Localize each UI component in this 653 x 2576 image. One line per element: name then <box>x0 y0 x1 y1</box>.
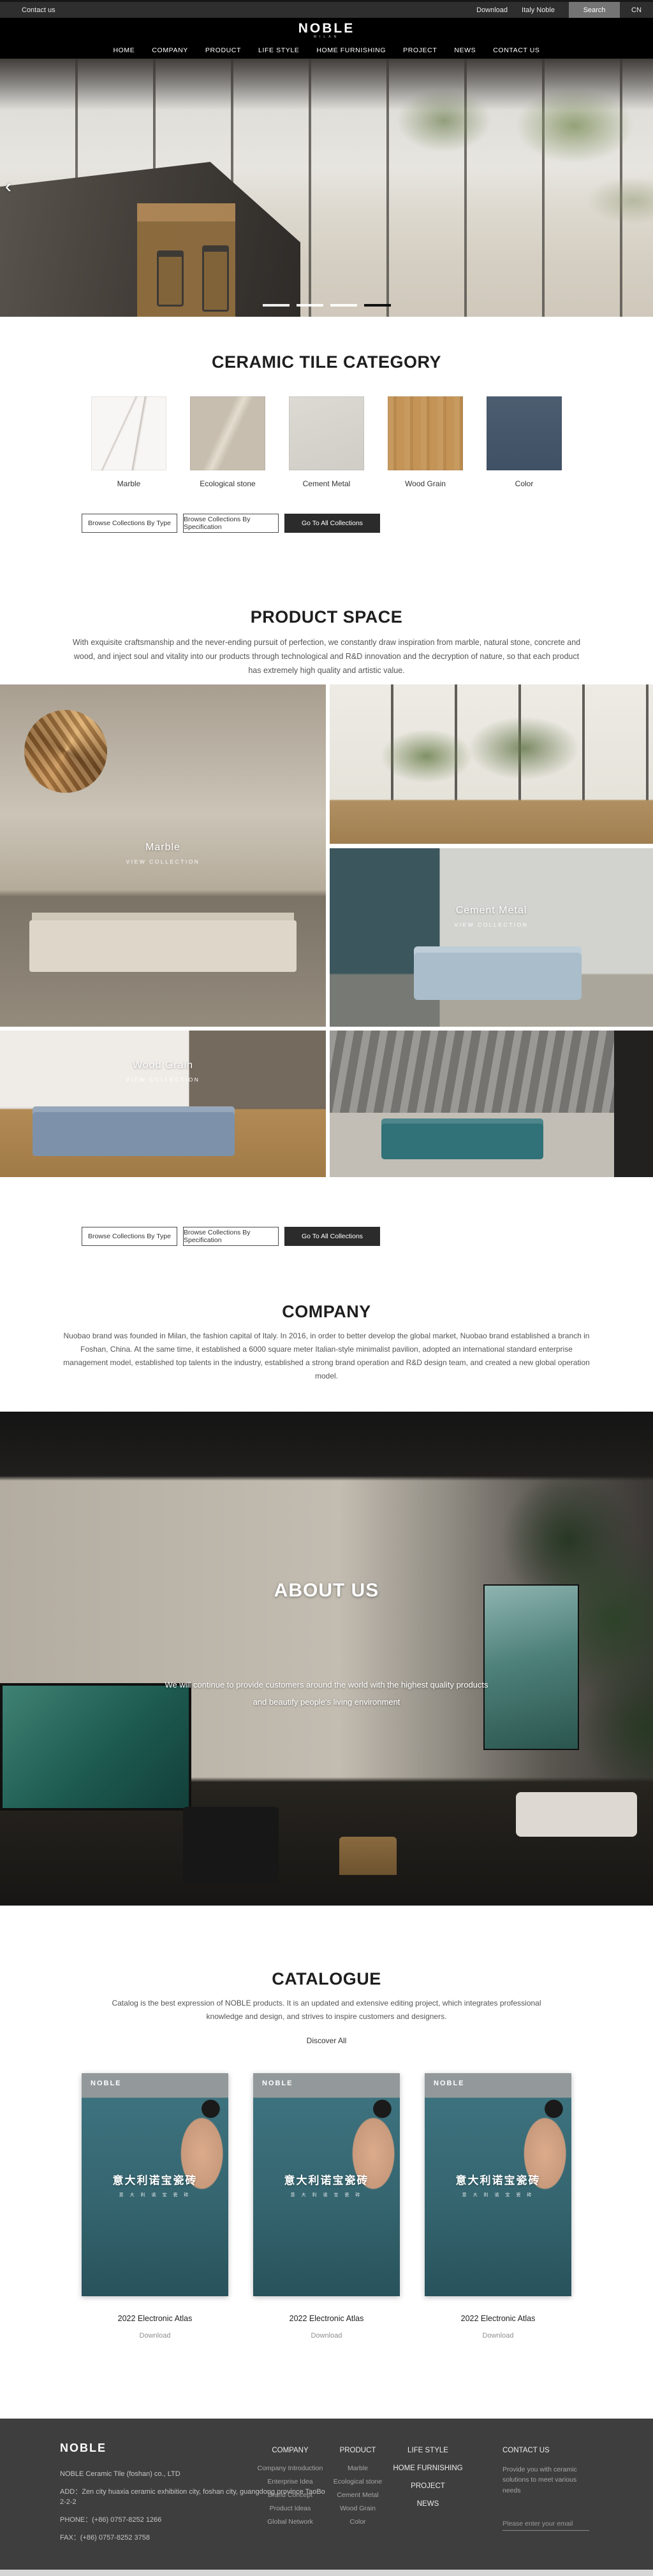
topbar: Contact us Download Italy Noble Search C… <box>0 0 653 18</box>
footer-project-link[interactable]: PROJECT <box>383 2482 473 2490</box>
footer-link[interactable]: Marble <box>326 2464 390 2472</box>
hero-slider[interactable]: ‹ <box>0 59 653 317</box>
atlas-title: 2022 Electronic Atlas <box>82 2314 228 2323</box>
footer-link[interactable]: Company Introduction <box>252 2464 328 2472</box>
wood-grain-space-image[interactable]: Wood Grain VIEW COLLECTION <box>0 1031 326 1177</box>
hero-stool-shape <box>157 250 184 307</box>
category-title: CERAMIC TILE CATEGORY <box>0 317 653 371</box>
cover-title-cn: 意大利诺宝瓷砖 <box>253 2171 400 2187</box>
nav-item-home[interactable]: HOME <box>113 47 135 54</box>
atlas-download-link[interactable]: Download <box>253 2332 400 2340</box>
footer-logo[interactable]: NOBLE <box>60 2442 106 2455</box>
footer-link[interactable]: Product Ideas <box>252 2505 328 2512</box>
view-collection-link[interactable]: VIEW COLLECTION <box>0 858 326 865</box>
main-nav: HOME COMPANY PRODUCT LIFE STYLE HOME FUR… <box>0 47 653 54</box>
view-collection-link[interactable]: VIEW COLLECTION <box>330 922 653 928</box>
marble-collection-label: Marble VIEW COLLECTION <box>0 842 326 865</box>
catalogue-cards: NOBLE 意大利诺宝瓷砖 意 大 利 诺 宝 瓷 砖 2022 Electro… <box>0 2073 653 2340</box>
company-title: COMPANY <box>0 1291 653 1321</box>
color-swatch[interactable] <box>487 396 562 470</box>
nav-item-company[interactable]: COMPANY <box>152 47 188 54</box>
nav-item-news[interactable]: NEWS <box>454 47 476 54</box>
cover-brand-text: NOBLE <box>262 2080 293 2087</box>
sofa-shape <box>414 946 582 1000</box>
footer-link[interactable]: Global Network <box>252 2518 328 2526</box>
collection-name: Cement Metal <box>330 905 653 916</box>
category-tiles: Marble Ecological stone Cement Metal Woo… <box>0 396 653 488</box>
discover-all-link[interactable]: Discover All <box>307 2036 347 2045</box>
footer-column-links: LIFE STYLE HOME FURNISHING PROJECT NEWS <box>383 2447 473 2518</box>
topbar-right: Download Italy Noble Search CN <box>476 2 653 18</box>
footer-link[interactable]: Brand Concept <box>252 2491 328 2499</box>
catalogue-card: NOBLE 意大利诺宝瓷砖 意 大 利 诺 宝 瓷 砖 2022 Electro… <box>253 2073 400 2340</box>
sofa-shape <box>381 1118 543 1159</box>
category-section: CERAMIC TILE CATEGORY Marble Ecological … <box>0 317 653 596</box>
about-tagline: We will continue to provide customers ar… <box>0 1676 653 1711</box>
atlas-download-link[interactable]: Download <box>425 2332 571 2340</box>
hero-stool-shape <box>202 245 229 312</box>
site-header: NOBLE MILAN HOME COMPANY PRODUCT LIFE ST… <box>0 18 653 59</box>
category-tile-ecological-stone: Ecological stone <box>190 396 265 488</box>
collection-buttons-row: Browse Collections By Type Browse Collec… <box>82 1227 571 1246</box>
footer-column-company: COMPANY Company Introduction Enterprise … <box>252 2447 328 2531</box>
product-space-description: With exquisite craftsmanship and the nev… <box>71 636 582 678</box>
product-space-grid: Marble VIEW COLLECTION Cement Metal VIEW… <box>0 684 653 1177</box>
footer-link[interactable]: Wood Grain <box>326 2505 390 2512</box>
sofa-shape <box>33 1106 235 1156</box>
brand-logo[interactable]: NOBLE MILAN <box>298 18 355 39</box>
atlas-cover-image[interactable]: NOBLE 意大利诺宝瓷砖 意 大 利 诺 宝 瓷 砖 <box>82 2073 228 2296</box>
footer-fax: FAX：(+86) 0757-8252 3758 <box>60 2533 328 2543</box>
company-description: Nuobao brand was founded in Milan, the f… <box>59 1329 594 1383</box>
cover-title-cn: 意大利诺宝瓷砖 <box>82 2171 228 2187</box>
coffee-table-shape <box>339 1837 397 1875</box>
catalogue-title: CATALOGUE <box>0 1906 653 1988</box>
catalogue-description: Catalog is the best expression of NOBLE … <box>103 1997 550 2023</box>
footer-bottom-strip <box>0 2570 653 2576</box>
nav-item-contact-us[interactable]: CONTACT US <box>493 47 539 54</box>
italy-noble-link[interactable]: Italy Noble <box>522 6 555 14</box>
email-input[interactable] <box>503 2517 589 2531</box>
about-title-wrap: ABOUT US <box>0 1580 653 1602</box>
cement-metal-swatch[interactable] <box>289 396 364 470</box>
atlas-title: 2022 Electronic Atlas <box>253 2314 400 2323</box>
catalogue-card: NOBLE 意大利诺宝瓷砖 意 大 利 诺 宝 瓷 砖 2022 Electro… <box>425 2073 571 2340</box>
browse-by-specification-button[interactable]: Browse Collections By Specification <box>183 1227 279 1246</box>
slide-indicator-1[interactable] <box>263 304 290 307</box>
about-line-1: We will continue to provide customers ar… <box>0 1676 653 1693</box>
marble-swatch[interactable] <box>91 396 166 470</box>
go-to-all-collections-button[interactable]: Go To All Collections <box>284 514 380 533</box>
sofa-shape <box>516 1792 637 1837</box>
slide-indicator-4-active[interactable] <box>364 304 391 307</box>
terrace-space-image[interactable] <box>330 684 653 844</box>
cover-subtitle-cn: 意 大 利 诺 宝 瓷 砖 <box>253 2192 400 2198</box>
brand-logo-text: NOBLE <box>298 21 355 36</box>
about-line-2: and beautify people's living environment <box>0 1693 653 1711</box>
brand-logo-subtext: MILAN <box>298 36 355 39</box>
nav-item-home-furnishing[interactable]: HOME FURNISHING <box>316 47 386 54</box>
wall-art-shape <box>24 710 107 793</box>
cover-brand-text: NOBLE <box>434 2080 465 2087</box>
view-collection-link[interactable]: VIEW COLLECTION <box>0 1076 326 1083</box>
footer-product-header[interactable]: PRODUCT <box>326 2447 390 2454</box>
atlas-download-link[interactable]: Download <box>82 2332 228 2340</box>
cement-metal-space-image[interactable]: Cement Metal VIEW COLLECTION <box>330 848 653 1027</box>
search-button[interactable]: Search <box>569 2 620 18</box>
marble-space-image[interactable]: Marble VIEW COLLECTION <box>0 684 326 1027</box>
armchair-shape <box>183 1807 279 1883</box>
contact-us-link[interactable]: Contact us <box>22 6 55 14</box>
atlas-cover-image[interactable]: NOBLE 意大利诺宝瓷砖 意 大 利 诺 宝 瓷 砖 <box>253 2073 400 2296</box>
footer-link[interactable]: Enterprise Idea <box>252 2478 328 2486</box>
sofa-shape <box>29 920 297 972</box>
product-space-title: PRODUCT SPACE <box>0 596 653 626</box>
product-space-section: PRODUCT SPACE With exquisite craftsmansh… <box>0 596 653 1291</box>
footer-column-contact: CONTACT US Provide you with ceramic solu… <box>503 2447 589 2531</box>
tile-label: Wood Grain <box>388 479 463 488</box>
cover-subtitle-cn: 意 大 利 诺 宝 瓷 砖 <box>425 2192 571 2198</box>
category-tile-color: Color <box>487 396 562 488</box>
footer-news-link[interactable]: NEWS <box>383 2500 473 2508</box>
go-to-all-collections-button[interactable]: Go To All Collections <box>284 1227 380 1246</box>
browse-by-type-button[interactable]: Browse Collections By Type <box>82 514 177 533</box>
cover-brand-text: NOBLE <box>91 2080 122 2087</box>
footer-link[interactable]: Color <box>326 2518 390 2526</box>
display-panel-shape <box>483 1584 579 1750</box>
catalogue-section: CATALOGUE Catalog is the best expression… <box>0 1906 653 2419</box>
wood-grain-swatch[interactable] <box>388 396 463 470</box>
tile-label: Marble <box>91 479 166 488</box>
browse-by-specification-button[interactable]: Browse Collections By Specification <box>183 514 279 533</box>
nav-item-product[interactable]: PRODUCT <box>205 47 241 54</box>
slide-indicators <box>0 304 653 307</box>
cement-metal-collection-label: Cement Metal VIEW COLLECTION <box>330 905 653 928</box>
collection-buttons-row: Browse Collections By Type Browse Collec… <box>82 514 571 533</box>
footer-home-furnishing-link[interactable]: HOME FURNISHING <box>383 2464 473 2472</box>
about-title: ABOUT US <box>0 1580 653 1602</box>
cover-title-cn: 意大利诺宝瓷砖 <box>425 2171 571 2187</box>
tile-label: Color <box>487 479 562 488</box>
tile-label: Ecological stone <box>190 479 265 488</box>
category-tile-wood-grain: Wood Grain <box>388 396 463 488</box>
ecological-stone-swatch[interactable] <box>190 396 265 470</box>
collection-name: Marble <box>0 842 326 853</box>
footer-life-style-link[interactable]: LIFE STYLE <box>383 2447 473 2454</box>
chevron-left-icon[interactable]: ‹ <box>5 177 11 196</box>
cover-subtitle-cn: 意 大 利 诺 宝 瓷 砖 <box>82 2192 228 2198</box>
wood-grain-collection-label: Wood Grain VIEW COLLECTION <box>0 1060 326 1083</box>
slide-indicator-2[interactable] <box>297 304 323 307</box>
atlas-cover-image[interactable]: NOBLE 意大利诺宝瓷砖 意 大 利 诺 宝 瓷 砖 <box>425 2073 571 2296</box>
slide-indicator-3[interactable] <box>330 304 357 307</box>
footer-contact-header[interactable]: CONTACT US <box>503 2447 589 2454</box>
download-link[interactable]: Download <box>476 6 508 14</box>
footer-column-product: PRODUCT Marble Ecological stone Cement M… <box>326 2447 390 2531</box>
footer-link[interactable]: Ecological stone <box>326 2478 390 2486</box>
category-tile-cement-metal: Cement Metal <box>289 396 364 488</box>
atlas-title: 2022 Electronic Atlas <box>425 2314 571 2323</box>
footer-contact-text: Provide you with ceramic solutions to me… <box>503 2464 589 2496</box>
category-tile-marble: Marble <box>91 396 166 488</box>
slat-wall-space-image[interactable] <box>330 1031 653 1177</box>
tile-label: Cement Metal <box>289 479 364 488</box>
footer-company-header[interactable]: COMPANY <box>252 2447 328 2454</box>
language-toggle[interactable]: CN <box>620 6 653 14</box>
browse-by-type-button[interactable]: Browse Collections By Type <box>82 1227 177 1246</box>
catalogue-card: NOBLE 意大利诺宝瓷砖 意 大 利 诺 宝 瓷 砖 2022 Electro… <box>82 2073 228 2340</box>
nav-item-life-style[interactable]: LIFE STYLE <box>258 47 299 54</box>
footer-link[interactable]: Cement Metal <box>326 2491 390 2499</box>
about-us-banner: ABOUT US We will continue to provide cus… <box>0 1412 653 1906</box>
nav-item-project[interactable]: PROJECT <box>403 47 437 54</box>
company-section: COMPANY Nuobao brand was founded in Mila… <box>0 1291 653 1412</box>
footer: NOBLE NOBLE Ceramic Tile (foshan) co., L… <box>0 2419 653 2576</box>
collection-name: Wood Grain <box>0 1060 326 1071</box>
